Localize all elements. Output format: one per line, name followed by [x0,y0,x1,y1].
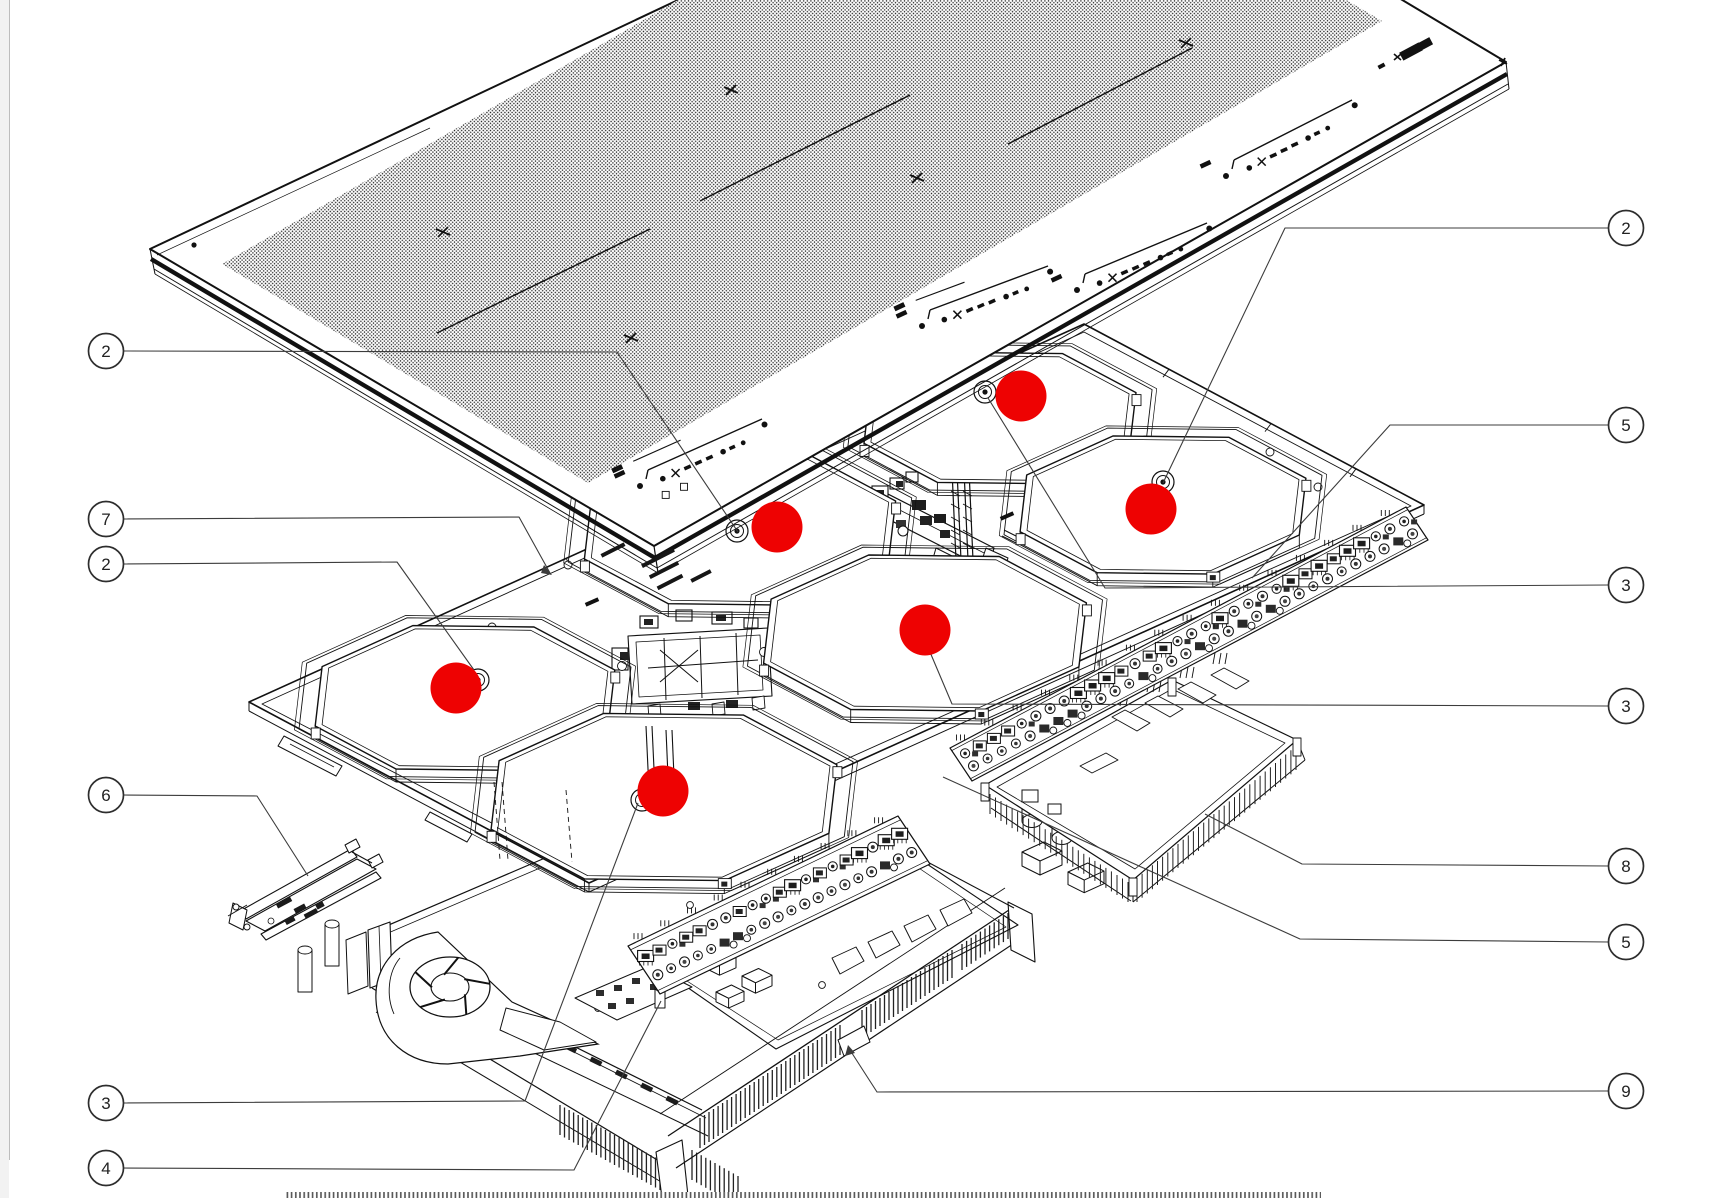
svg-text:3: 3 [1621,697,1630,716]
svg-text:7: 7 [101,510,110,529]
svg-text:5: 5 [1621,933,1630,952]
svg-text:8: 8 [1621,857,1630,876]
svg-text:2: 2 [101,555,110,574]
svg-text:2: 2 [1621,219,1630,238]
svg-text:4: 4 [101,1159,110,1178]
svg-text:3: 3 [1621,576,1630,595]
svg-text:3: 3 [101,1094,110,1113]
svg-text:2: 2 [101,342,110,361]
svg-text:5: 5 [1621,416,1630,435]
svg-text:6: 6 [101,786,110,805]
svg-text:9: 9 [1621,1082,1630,1101]
